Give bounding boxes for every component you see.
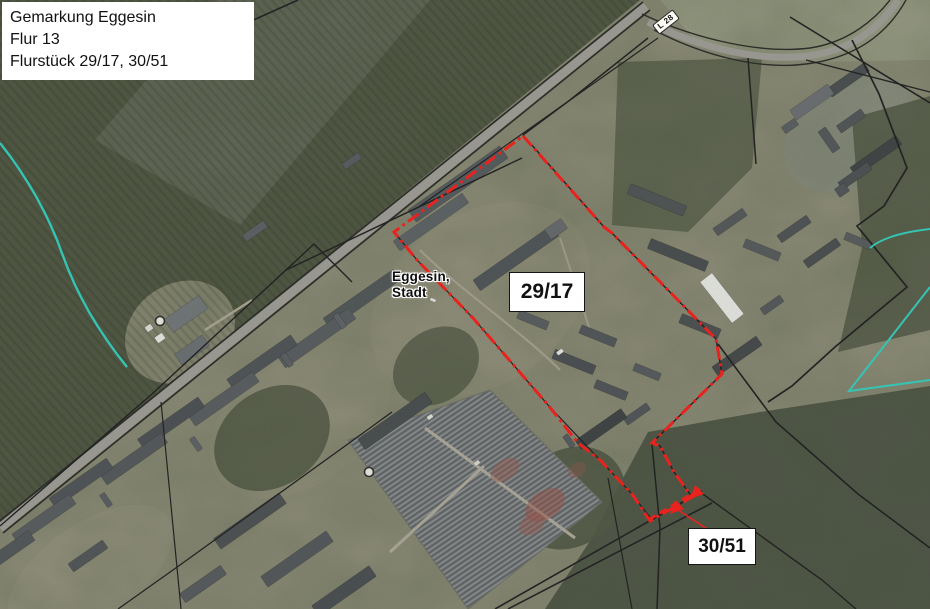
photo-grain-texture	[0, 0, 930, 609]
parcel-label-29-17: 29/17	[509, 272, 585, 312]
parcel-29-17-text: 29/17	[521, 280, 574, 304]
aerial-map-canvas	[0, 0, 930, 609]
cadastral-map-page: Gemarkung Eggesin Flur 13 Flurstück 29/1…	[0, 0, 930, 609]
legend-flur: Flur 13	[10, 29, 244, 51]
place-name-label: Eggesin, Stadt	[392, 269, 450, 301]
legend-flurstueck: Flurstück 29/17, 30/51	[10, 51, 244, 73]
map-legend-box: Gemarkung Eggesin Flur 13 Flurstück 29/1…	[2, 2, 254, 80]
parcel-label-30-51: 30/51	[688, 528, 756, 565]
parcel-30-51-text: 30/51	[698, 536, 746, 558]
place-name-line2: Stadt	[392, 285, 450, 301]
legend-gemarkung: Gemarkung Eggesin	[10, 7, 244, 29]
place-name-line1: Eggesin,	[392, 269, 450, 285]
